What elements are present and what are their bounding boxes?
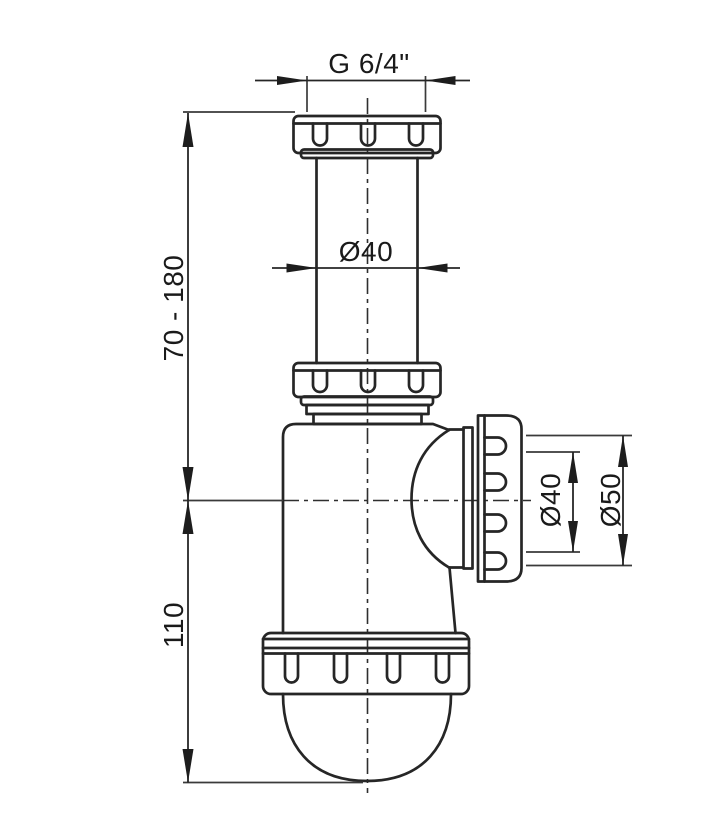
dimension-labels: G 6/4" Ø40 70 - 180 110 Ø40 Ø50 bbox=[158, 48, 626, 648]
bottom-nut-slot bbox=[436, 654, 449, 683]
arrowhead bbox=[568, 452, 578, 483]
adjustable-height-label: 70 - 180 bbox=[158, 255, 189, 362]
arrowhead bbox=[418, 264, 448, 273]
arrowhead bbox=[618, 436, 628, 468]
middle-nut-slot bbox=[409, 371, 423, 393]
arrowhead bbox=[426, 76, 456, 85]
bottom-nut-body bbox=[263, 633, 469, 694]
outlet-connection bbox=[464, 416, 522, 582]
body-right-wall bbox=[450, 568, 456, 634]
bottom-nut-slot bbox=[387, 654, 400, 683]
siphon-diagram: G 6/4" Ø40 70 - 180 110 Ø40 Ø50 bbox=[0, 0, 725, 840]
outlet-outer-diameter-label: Ø50 bbox=[595, 473, 626, 527]
arrowhead bbox=[183, 467, 194, 501]
bottom-nut-slot bbox=[285, 654, 298, 683]
arrowhead bbox=[183, 501, 194, 535]
bottom-nut-slot bbox=[334, 654, 347, 683]
top-nut-slot bbox=[313, 124, 327, 146]
arrowhead bbox=[568, 521, 578, 552]
outlet-nut-slot bbox=[485, 553, 507, 570]
thread-size-label: G 6/4" bbox=[328, 48, 409, 79]
arrowhead bbox=[183, 113, 194, 147]
inlet-diameter-label: Ø40 bbox=[339, 236, 393, 267]
part-outline bbox=[263, 116, 522, 781]
centerlines bbox=[283, 98, 531, 793]
dimension-lines bbox=[183, 76, 629, 783]
outlet-inner-diameter-label: Ø40 bbox=[535, 473, 566, 527]
outlet-nut-slot bbox=[485, 438, 507, 455]
outlet-flange bbox=[464, 428, 473, 569]
arrowhead bbox=[618, 534, 628, 566]
outlet-nut-slot bbox=[485, 515, 507, 532]
arrowhead bbox=[277, 76, 307, 85]
body-height-label: 110 bbox=[158, 602, 189, 648]
trap-body bbox=[283, 424, 464, 633]
arrowhead bbox=[183, 749, 194, 783]
middle-nut-slot bbox=[313, 371, 327, 393]
outlet-transition-curve bbox=[412, 430, 450, 568]
outlet-nut-slot bbox=[485, 474, 507, 491]
extension-lines bbox=[183, 76, 632, 783]
technical-drawing-canvas: G 6/4" Ø40 70 - 180 110 Ø40 Ø50 bbox=[0, 0, 725, 840]
bottom-cup-nut bbox=[263, 633, 469, 694]
top-nut-slot bbox=[409, 124, 423, 146]
arrowhead bbox=[287, 264, 317, 273]
